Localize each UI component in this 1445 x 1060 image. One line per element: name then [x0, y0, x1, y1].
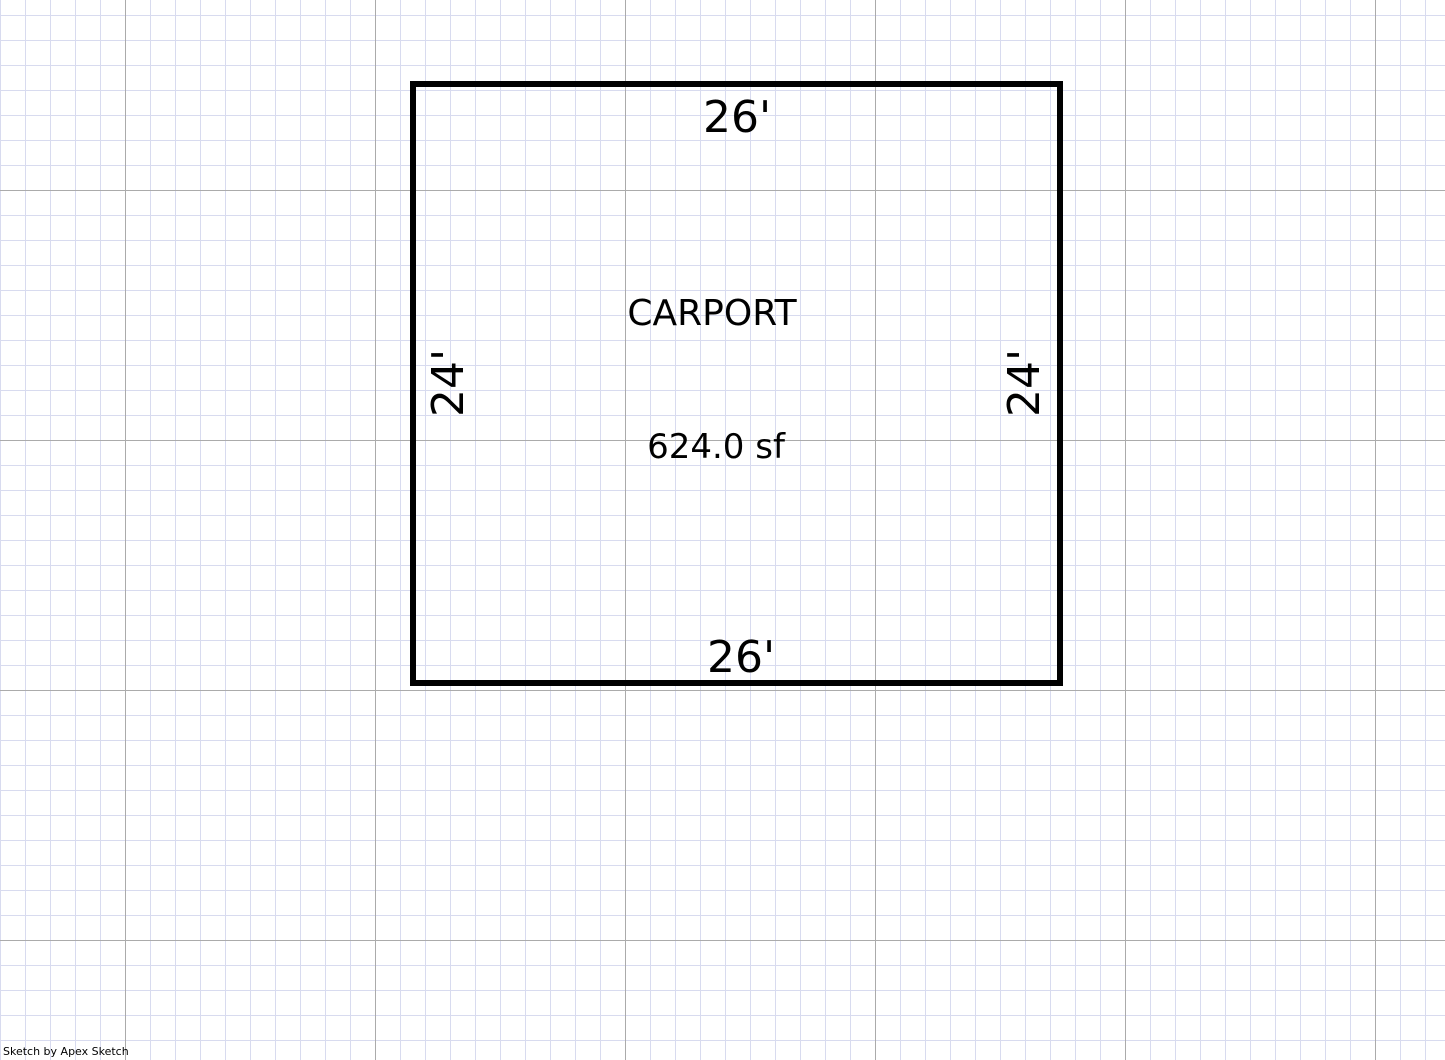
- dimension-label-bottom: 26': [707, 636, 775, 680]
- dimension-label-top: 26': [703, 96, 771, 140]
- room-area-label: 624.0 sf: [647, 430, 785, 464]
- dimension-label-left: 24': [427, 349, 471, 417]
- dimension-label-right: 24': [1003, 349, 1047, 417]
- carport-outline[interactable]: [410, 81, 1063, 686]
- room-name-label: CARPORT: [627, 296, 796, 332]
- sketch-canvas[interactable]: 26' 26' 24' 24' CARPORT 624.0 sf Sketch …: [0, 0, 1445, 1060]
- apex-sketch-watermark: Sketch by Apex Sketch: [3, 1045, 129, 1058]
